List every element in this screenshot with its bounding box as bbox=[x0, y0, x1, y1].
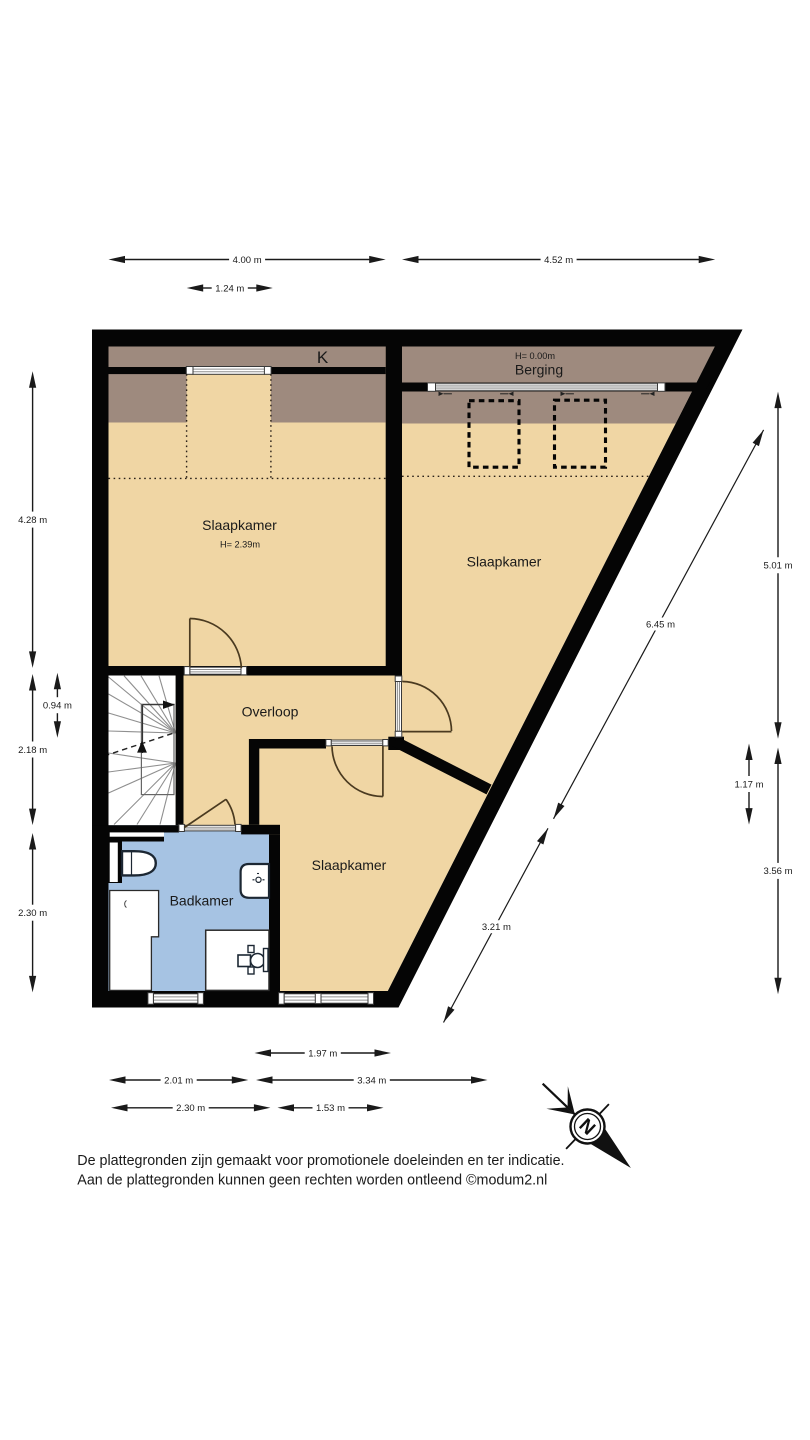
svg-text:2.30 m: 2.30 m bbox=[176, 1103, 205, 1114]
svg-text:4.52 m: 4.52 m bbox=[544, 255, 573, 266]
svg-text:4.28 m: 4.28 m bbox=[18, 515, 47, 526]
svg-text:1.24 m: 1.24 m bbox=[215, 283, 244, 294]
svg-text:Aan de plattegronden kunnen ge: Aan de plattegronden kunnen geen rechten… bbox=[77, 1173, 547, 1189]
svg-text:6.45 m: 6.45 m bbox=[646, 619, 675, 630]
svg-text:3.56 m: 3.56 m bbox=[763, 866, 792, 877]
svg-text:De plattegronden zijn gemaakt: De plattegronden zijn gemaakt voor promo… bbox=[77, 1153, 564, 1169]
svg-text:H= 2.39m: H= 2.39m bbox=[220, 540, 260, 550]
svg-text:1.97 m: 1.97 m bbox=[308, 1048, 337, 1059]
svg-text:1.53 m: 1.53 m bbox=[316, 1103, 345, 1114]
svg-text:1.17 m: 1.17 m bbox=[734, 779, 763, 790]
svg-text:3.21 m: 3.21 m bbox=[482, 922, 511, 933]
svg-text:0.94 m: 0.94 m bbox=[43, 701, 72, 712]
svg-text:H= 0.00m: H= 0.00m bbox=[515, 351, 555, 361]
svg-text:K: K bbox=[317, 348, 329, 367]
svg-text:5.01 m: 5.01 m bbox=[763, 561, 792, 572]
svg-text:Slaapkamer: Slaapkamer bbox=[202, 517, 277, 533]
svg-text:Badkamer: Badkamer bbox=[170, 893, 234, 909]
svg-text:Berging: Berging bbox=[515, 362, 563, 378]
svg-text:3.34 m: 3.34 m bbox=[357, 1075, 386, 1086]
svg-text:Slaapkamer: Slaapkamer bbox=[467, 554, 542, 570]
svg-text:4.00 m: 4.00 m bbox=[233, 255, 262, 266]
svg-text:Slaapkamer: Slaapkamer bbox=[312, 857, 387, 873]
svg-text:2.18 m: 2.18 m bbox=[18, 745, 47, 756]
svg-text:2.01 m: 2.01 m bbox=[164, 1075, 193, 1086]
svg-text:Overloop: Overloop bbox=[242, 704, 299, 720]
svg-text:2.30 m: 2.30 m bbox=[18, 908, 47, 919]
